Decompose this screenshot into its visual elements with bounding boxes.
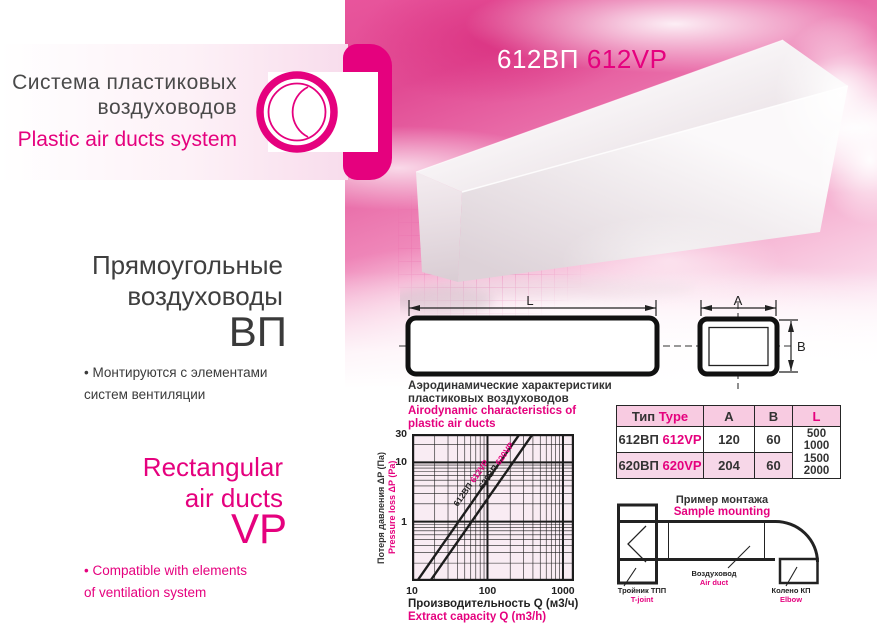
col-header-a: A [704, 406, 755, 427]
pressure-loss-chart: 612ВП 612VP620ВП 620VP [412, 434, 574, 581]
duct-logo-icon [253, 68, 341, 156]
y-tick-label: 1 [383, 516, 407, 528]
product-code-en: 612VP [587, 44, 668, 74]
product-code: 612ВП612VP [497, 44, 668, 75]
chart-title-en-line2: plastic air ducts [408, 418, 612, 431]
col-header-b: B [755, 406, 793, 427]
label-tjoint-ru: Тройник ТПП [608, 586, 676, 595]
l-value: 1500 [804, 453, 830, 465]
label-duct-en: Air duct [682, 578, 746, 587]
x-tick-label: 10 [394, 585, 430, 597]
cell-a-620: 204 [704, 453, 755, 479]
y-tick-label: 30 [383, 428, 407, 440]
series-code-en: VP [0, 505, 287, 553]
series-code-ru: ВП [0, 308, 287, 356]
feature-bullet-en: Compatible with elements of ventilation … [84, 560, 284, 604]
chart-title-en-line1: Airodynamic characteristics of [408, 405, 612, 418]
cell-lengths: 500 1000 1500 2000 [793, 427, 841, 479]
type-en: 612VP [663, 432, 702, 447]
x-axis-label-ru: Производительность Q (м3/ч) [408, 598, 618, 610]
brand-title-en: Plastic air ducts system [12, 127, 237, 152]
cell-a-612: 120 [704, 427, 755, 453]
catalog-page: Система пластиковых воздуховодов Plastic… [0, 0, 877, 623]
dim-label-L: L [526, 293, 533, 308]
label-elbow-ru: Колено КП [760, 586, 822, 595]
type-ru: 620ВП [618, 458, 658, 473]
feature-bullet-en-line2: of ventilation system [84, 585, 206, 600]
product-code-ru: 612ВП [497, 44, 579, 74]
brand-title: Система пластиковых воздуховодов Plastic… [12, 70, 237, 152]
label-tjoint-en: T-joint [608, 595, 676, 604]
cell-type-612: 612ВП 612VP [617, 427, 704, 453]
spec-table-header-row: Тип Type A B L [617, 406, 841, 427]
chart-title-ru-line1: Аэродинамические характеристики [408, 380, 612, 393]
heading-ru: Прямоугольные воздуховоды [0, 250, 283, 312]
type-en: 620VP [663, 458, 702, 473]
col-header-type-ru: Тип [632, 409, 655, 424]
tjoint-shape [619, 505, 657, 583]
cell-b-612: 60 [755, 427, 793, 453]
feature-bullet-ru-line1: Монтируются с элементами [84, 365, 267, 380]
label-duct: Воздуховод Air duct [682, 569, 746, 587]
col-header-l: L [793, 406, 841, 427]
l-value: 1000 [804, 440, 830, 452]
brand-title-ru-line1: Система пластиковых [12, 71, 237, 94]
l-value: 2000 [804, 465, 830, 477]
chart-title: Аэродинамические характеристики пластико… [408, 380, 612, 431]
col-header-type-en: Type [659, 409, 688, 424]
chart-block: Аэродинамические характеристики пластико… [375, 378, 618, 623]
duct-side-view [408, 318, 657, 374]
chart-title-ru-line2: пластиковых воздуховодов [408, 393, 612, 406]
label-elbow-en: Elbow [760, 595, 822, 604]
dim-label-B: B [797, 339, 806, 354]
cell-b-620: 60 [755, 453, 793, 479]
elbow-outlet-shape [780, 559, 818, 583]
label-duct-ru: Воздуховод [682, 569, 746, 578]
dim-label-A: A [734, 293, 743, 308]
feature-bullet-ru: Монтируются с элементами систем вентиляц… [84, 362, 284, 406]
x-axis-label-en: Extract capacity Q (m3/h) [408, 611, 618, 623]
heading-ru-line2: воздуховоды [127, 281, 283, 311]
feature-bullet-ru-line2: систем вентиляции [84, 387, 205, 402]
heading-en-line1: Rectangular [143, 452, 283, 482]
label-tjoint: Тройник ТПП T-joint [608, 586, 676, 604]
heading-ru-line1: Прямоугольные [92, 250, 283, 280]
brand-title-ru-line2: воздуховодов [98, 96, 237, 119]
type-ru: 612ВП [618, 432, 658, 447]
spec-table: Тип Type A B L 612ВП 612VP 120 60 500 10… [616, 405, 841, 479]
cell-type-620: 620ВП 620VP [617, 453, 704, 479]
y-tick-label: 10 [383, 456, 407, 468]
table-row: 612ВП 612VP 120 60 500 1000 1500 2000 [617, 427, 841, 453]
x-tick-label: 1000 [545, 585, 581, 597]
col-header-type: Тип Type [617, 406, 704, 427]
x-tick-label: 100 [469, 585, 505, 597]
elbow-arc [775, 521, 818, 562]
label-elbow: Колено КП Elbow [760, 586, 822, 604]
feature-bullet-en-line1: Compatible with elements [84, 563, 247, 578]
l-value: 500 [807, 428, 826, 440]
